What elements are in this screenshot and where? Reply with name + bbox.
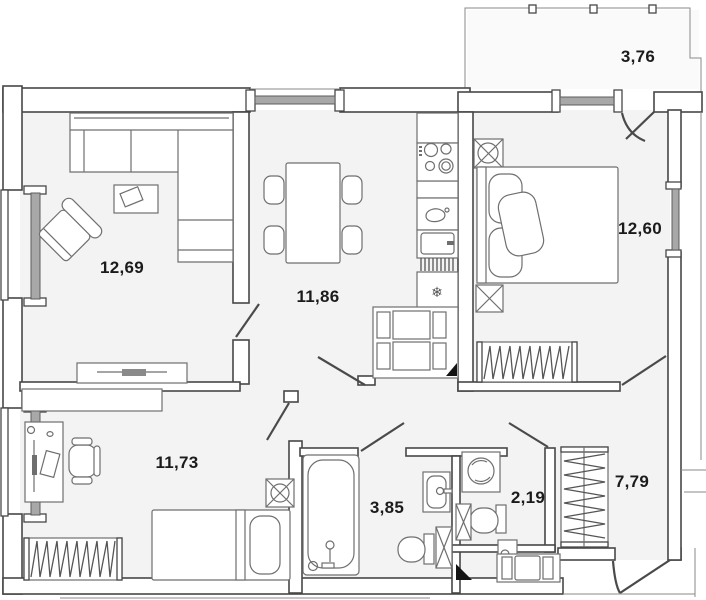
label-kitchen: 11,86 (296, 287, 339, 306)
vent-box-toilet (456, 504, 471, 540)
coffee-table (114, 185, 158, 213)
bedroom-wardrobe (477, 342, 577, 382)
kitchen-sink (417, 198, 458, 230)
double-bed (477, 167, 618, 283)
bathroom-toilet (398, 534, 434, 564)
label-living-room: 12,69 (100, 258, 144, 277)
freezer: ❄ (417, 272, 458, 310)
window-kitchen-top (246, 89, 344, 111)
label-bathroom: 3,85 (370, 498, 404, 517)
nightstand-top (474, 139, 503, 168)
room-wardrobe (24, 538, 122, 580)
single-bed (152, 510, 290, 580)
label-second-room: 11,73 (155, 453, 198, 472)
window-balcony (552, 90, 622, 112)
label-bedroom: 12,60 (618, 219, 662, 238)
shoe-cabinet (497, 554, 560, 582)
floor-plan-page: ❄ (0, 0, 706, 600)
bathroom-sink (423, 472, 452, 512)
desk (25, 422, 63, 502)
floor-plan: ❄ (0, 0, 706, 600)
bathtub (303, 455, 359, 575)
vent-box-bathroom (436, 527, 452, 568)
label-hallway: 7,79 (615, 472, 649, 491)
vent-box-room (266, 479, 294, 507)
label-balcony: 3,76 (621, 47, 655, 66)
nightstand-bottom (476, 285, 503, 312)
snowflake-icon: ❄ (431, 285, 443, 301)
stove (417, 143, 458, 181)
dining-table (286, 163, 340, 263)
wall-shelf (22, 389, 162, 411)
hall-wardrobe (561, 447, 608, 547)
tv-stand (77, 363, 187, 383)
label-toilet: 2,19 (511, 488, 545, 507)
washing-machine (462, 452, 500, 492)
kitchen-cabinet (373, 307, 458, 378)
